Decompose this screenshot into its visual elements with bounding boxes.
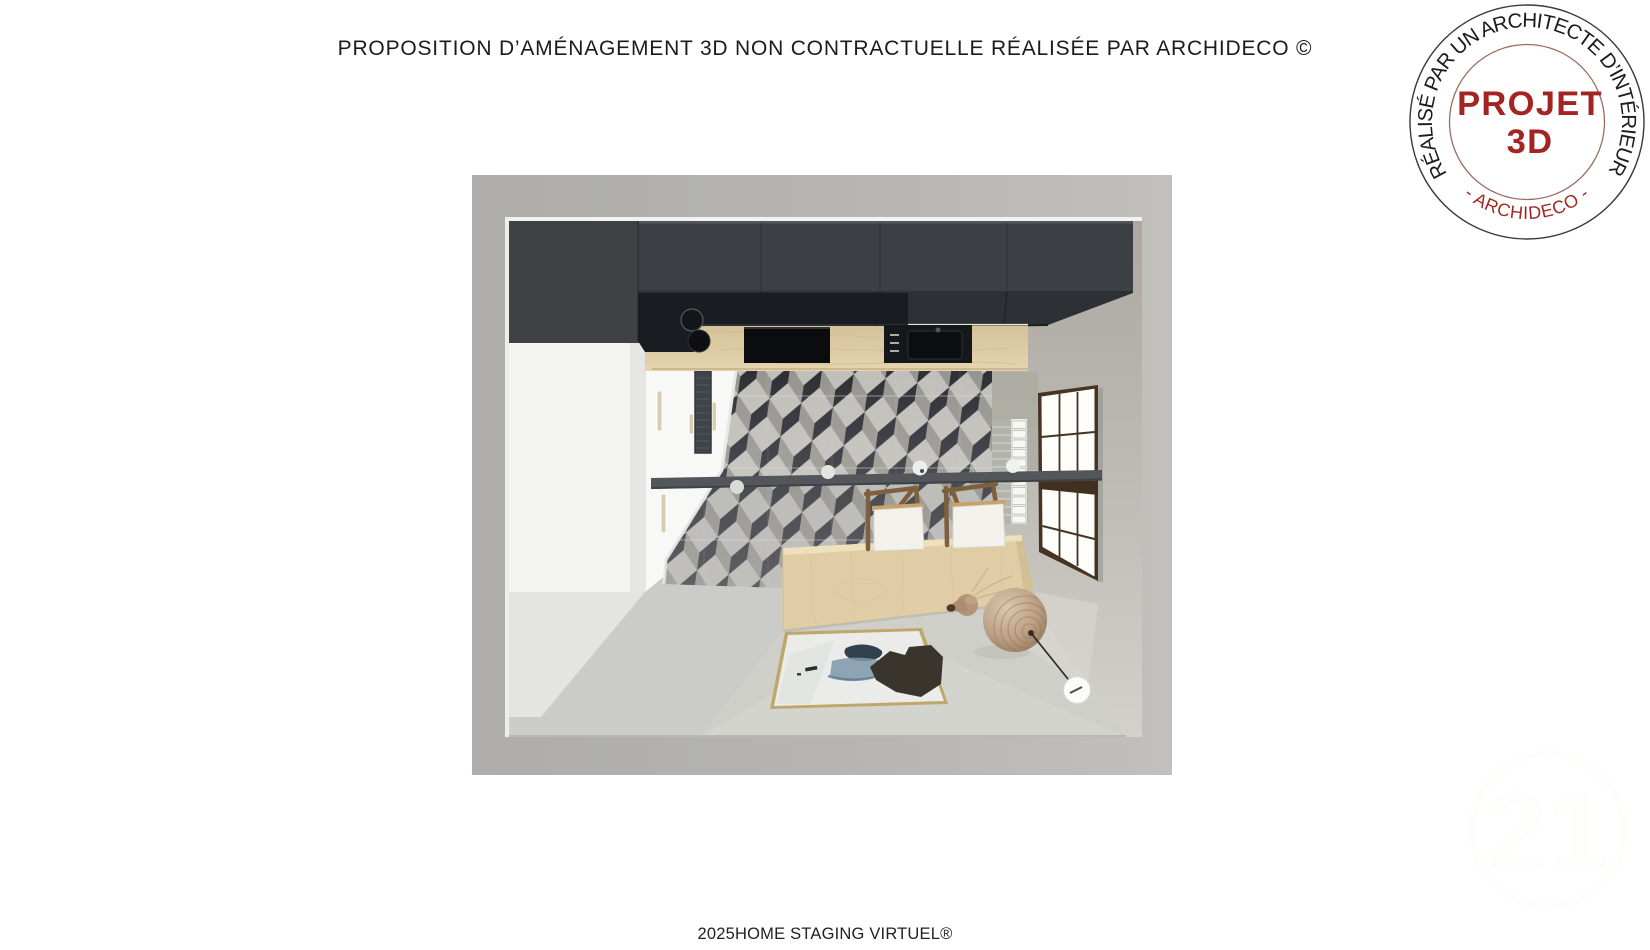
svg-text:3D: 3D [1507, 123, 1554, 161]
svg-text:PROJET: PROJET [1457, 85, 1603, 123]
svg-text:21: 21 [1487, 769, 1609, 892]
